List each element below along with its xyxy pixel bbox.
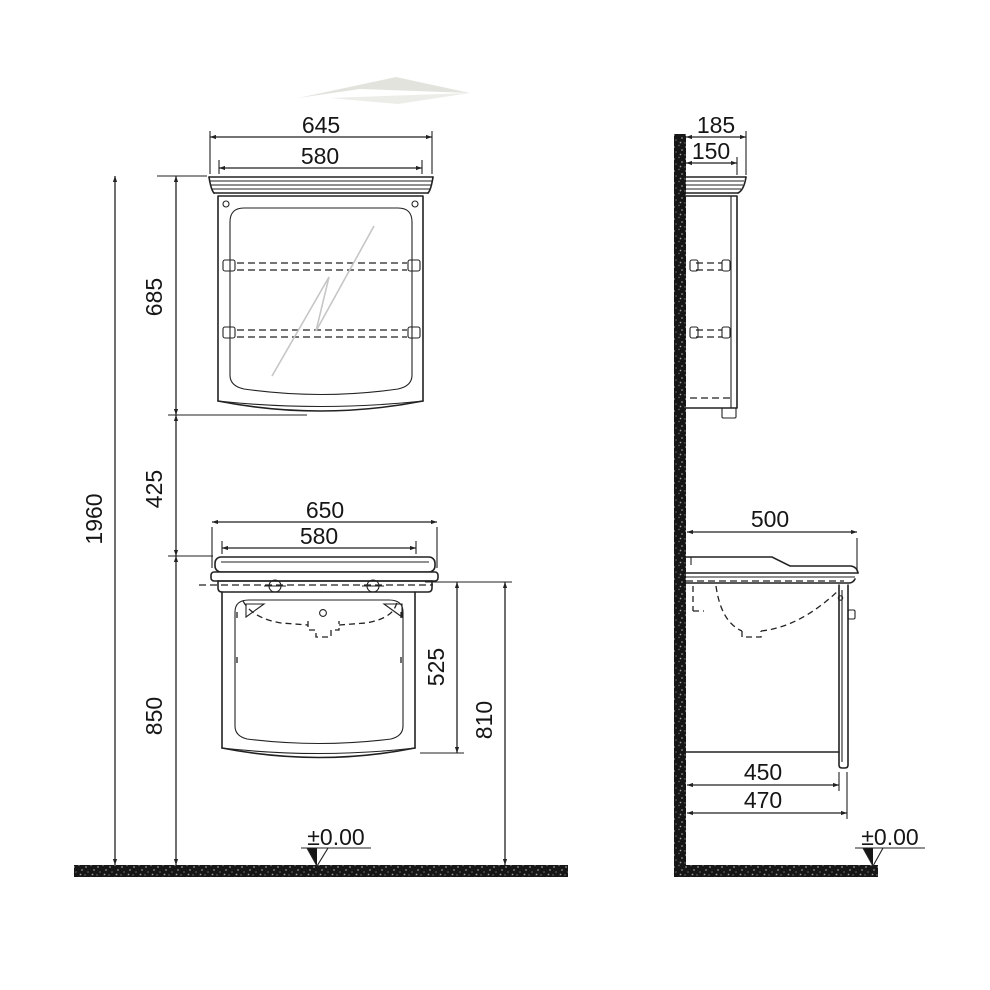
floor-hatch-left bbox=[74, 865, 568, 877]
dim-label-total-height: 1960 bbox=[81, 493, 107, 544]
mirror-glass-panel bbox=[230, 208, 412, 395]
basin-rim bbox=[211, 557, 438, 581]
floor-hatch-right bbox=[674, 865, 878, 877]
mirror-side-shelf-lower bbox=[690, 327, 730, 338]
wall-section-hatch bbox=[674, 134, 686, 865]
front-elevation: 645 580 685 425 850 1960 650 580 525 81 bbox=[81, 112, 512, 866]
dim-label-clearance-height: 810 bbox=[471, 701, 497, 739]
washbasin-unit-side bbox=[686, 557, 858, 768]
basin-side-profile bbox=[686, 557, 858, 583]
corner-bracket-right bbox=[384, 604, 402, 617]
dim-label-gap: 425 bbox=[141, 470, 167, 508]
mirror-cabinet-front bbox=[209, 177, 433, 411]
overflow-hole bbox=[320, 610, 327, 617]
mounting-rail bbox=[199, 580, 433, 592]
basin-bowl-side-hidden bbox=[693, 586, 839, 637]
datum-label-left: ±0.00 bbox=[307, 824, 364, 850]
dim-label-worktop-height: 850 bbox=[141, 697, 167, 735]
vanity-side-door bbox=[839, 585, 848, 768]
technical-drawing-page: 645 580 685 425 850 1960 650 580 525 81 bbox=[0, 0, 990, 990]
drain-trap-outline bbox=[308, 621, 339, 637]
dim-label-cabinet-depth: 450 bbox=[744, 759, 782, 785]
mirror-shelf-lower bbox=[223, 327, 420, 338]
dim-label-basin-depth: 500 bbox=[751, 506, 789, 532]
side-dimensions: 185 150 500 450 470 bbox=[686, 112, 857, 819]
dim-label-vanity-body-width: 580 bbox=[300, 523, 338, 549]
mirror-side-foot bbox=[722, 408, 736, 418]
washbasin-unit-front bbox=[199, 557, 438, 758]
mirror-cornice bbox=[209, 177, 433, 193]
watermark-swoosh bbox=[298, 77, 470, 104]
dim-label-cabinet-height: 525 bbox=[423, 648, 449, 686]
basin-bowl-hidden-outline bbox=[237, 601, 402, 666]
dim-label-mirror-body-depth: 150 bbox=[692, 138, 730, 164]
mirror-reflection-mark bbox=[272, 226, 374, 376]
datum-label-right: ±0.00 bbox=[861, 824, 918, 850]
vanity-body bbox=[222, 592, 415, 758]
dim-label-mirror-overall-depth: 185 bbox=[697, 112, 735, 138]
mirror-cabinet-side bbox=[686, 177, 746, 418]
vanity-door-panel bbox=[235, 600, 403, 744]
mirror-shelf-upper bbox=[223, 260, 420, 271]
mirror-side-body bbox=[686, 196, 737, 408]
dim-label-mirror-overall-width: 645 bbox=[302, 112, 340, 138]
datum-marker-left: ±0.00 bbox=[301, 824, 371, 866]
datum-marker-right: ±0.00 bbox=[855, 824, 925, 866]
dim-label-vanity-overall-width: 650 bbox=[306, 497, 344, 523]
mirror-side-shelf-upper bbox=[690, 260, 730, 271]
side-elevation: 185 150 500 450 470 ±0.00 bbox=[686, 112, 925, 866]
dim-label-mirror-body-width: 580 bbox=[301, 143, 339, 169]
front-dimensions: 645 580 685 425 850 1960 650 580 525 81 bbox=[81, 112, 512, 865]
door-knob-tab bbox=[848, 610, 855, 619]
drawing-canvas: 645 580 685 425 850 1960 650 580 525 81 bbox=[0, 0, 990, 990]
mirror-cornice-side bbox=[686, 177, 746, 193]
mirror-body bbox=[218, 196, 423, 411]
corner-bracket-left bbox=[246, 604, 264, 617]
screw-left bbox=[223, 201, 229, 207]
screw-right bbox=[412, 201, 418, 207]
dim-label-mirror-height: 685 bbox=[141, 278, 167, 316]
dim-label-depth-with-door: 470 bbox=[744, 787, 782, 813]
